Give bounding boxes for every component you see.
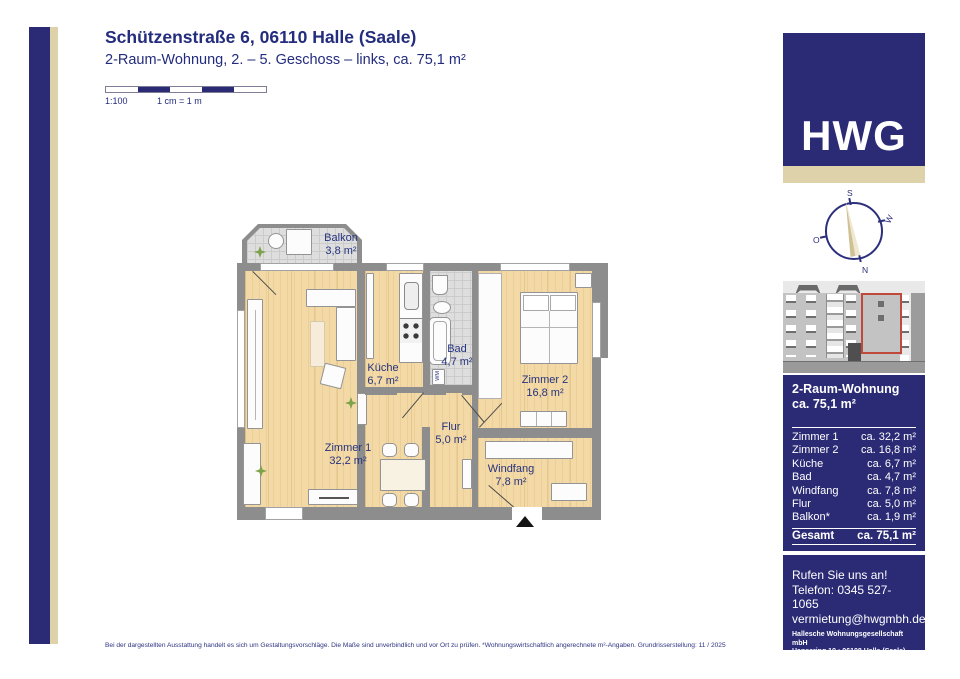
table-row: Flurca. 5,0 m² bbox=[792, 498, 916, 511]
table-row: Windfangca. 7,8 m² bbox=[792, 485, 916, 498]
radiator bbox=[462, 459, 472, 489]
table-row: Zimmer 1ca. 32,2 m² bbox=[792, 431, 916, 444]
window-zimmer2-right bbox=[592, 302, 601, 358]
row-label: Flur bbox=[792, 498, 811, 511]
corner-shelf bbox=[575, 273, 592, 288]
compass: S W O N bbox=[783, 185, 925, 277]
bench bbox=[520, 411, 567, 427]
table-row: Kücheca. 6,7 m² bbox=[792, 458, 916, 471]
cupboard bbox=[357, 393, 367, 425]
washing-machine: WM bbox=[432, 369, 445, 385]
divider bbox=[792, 544, 916, 545]
summary-line1: 2-Raum-Wohnung bbox=[792, 382, 916, 397]
disclaimer: Bei der dargestellten Ausstattung handel… bbox=[105, 642, 726, 649]
room-label-bad: Bad 4,7 m² bbox=[429, 343, 485, 368]
flyer-page: Schützenstraße 6, 06110 Halle (Saale) 2-… bbox=[0, 0, 960, 679]
stairwell-column bbox=[826, 294, 844, 358]
window-zimmer1-left bbox=[237, 310, 245, 428]
row-label: Zimmer 2 bbox=[792, 444, 838, 457]
row-value: ca. 1,9 m² bbox=[867, 511, 916, 524]
rug bbox=[310, 321, 325, 367]
bath-sink bbox=[433, 301, 451, 314]
wall-kueche-bottom bbox=[365, 387, 397, 395]
hwg-logo-text: HWG bbox=[783, 112, 925, 160]
row-label: Bad bbox=[792, 471, 812, 484]
room-label-zimmer2: Zimmer 2 16,8 m² bbox=[514, 374, 576, 399]
left-brand-bar bbox=[29, 27, 50, 644]
row-value: ca. 16,8 m² bbox=[861, 444, 916, 457]
outer-wall-notch bbox=[601, 263, 608, 358]
room-name: Flur bbox=[442, 421, 461, 433]
room-name: Balkon bbox=[324, 232, 358, 244]
hall-wardrobe bbox=[485, 441, 573, 459]
building-photo bbox=[783, 281, 925, 373]
table-total-row: Gesamt ca. 75,1 m² bbox=[792, 529, 916, 544]
window-kueche bbox=[386, 263, 424, 271]
room-area: 32,2 m² bbox=[329, 455, 366, 467]
balcony-table bbox=[268, 233, 284, 249]
wall-bad-bottom-left bbox=[430, 385, 446, 395]
total-value: ca. 75,1 m² bbox=[857, 529, 916, 544]
logo-accent-strip bbox=[783, 166, 925, 183]
built-in-wardrobe bbox=[478, 273, 502, 399]
room-name: Zimmer 2 bbox=[522, 374, 568, 386]
balcony-lounger bbox=[286, 229, 312, 255]
page-subtitle: 2-Raum-Wohnung, 2. – 5. Geschoss – links… bbox=[105, 52, 466, 68]
row-label: Balkon* bbox=[792, 511, 830, 524]
row-value: ca. 32,2 m² bbox=[861, 431, 916, 444]
hwg-logo: HWG bbox=[783, 33, 925, 166]
scale-bar bbox=[105, 86, 267, 93]
room-area: 6,7 m² bbox=[367, 375, 398, 387]
room-name: Küche bbox=[367, 362, 398, 374]
page-title: Schützenstraße 6, 06110 Halle (Saale) bbox=[105, 27, 416, 48]
room-label-flur: Flur 5,0 m² bbox=[428, 421, 474, 446]
bed bbox=[520, 292, 578, 364]
contact-email[interactable]: vermietung@hwgmbh.de bbox=[792, 612, 916, 627]
table-row: Badca. 4,7 m² bbox=[792, 471, 916, 484]
left-accent-bar bbox=[50, 27, 58, 644]
contact-website[interactable]: www.hwgmbh.de bbox=[792, 657, 916, 666]
room-label-zimmer1: Zimmer 1 32,2 m² bbox=[319, 442, 377, 467]
room-area: 4,7 m² bbox=[441, 356, 472, 368]
scale-seg bbox=[106, 87, 138, 92]
scale-ratio: 1:100 bbox=[105, 96, 128, 106]
apartment-summary-panel: 2-Raum-Wohnung ca. 75,1 m² Zimmer 1ca. 3… bbox=[783, 375, 925, 551]
wall-zimmer2-bottom bbox=[472, 428, 601, 438]
room-label-windfang: Windfang 7,8 m² bbox=[473, 463, 549, 488]
scale-note: 1 cm = 1 m bbox=[157, 96, 202, 106]
window-column bbox=[786, 295, 796, 357]
scale-seg bbox=[170, 87, 202, 92]
sofa bbox=[336, 307, 356, 361]
window-column bbox=[806, 295, 816, 357]
sofa bbox=[306, 289, 356, 307]
room-name: Bad bbox=[447, 343, 467, 355]
contact-panel: Rufen Sie uns an! Telefon: 0345 527-1065… bbox=[783, 555, 925, 650]
scale-seg bbox=[234, 87, 266, 92]
apartment-highlight-box bbox=[861, 293, 902, 354]
room-name: Windfang bbox=[488, 463, 534, 475]
row-label: Windfang bbox=[792, 485, 838, 498]
kitchen-unit bbox=[399, 273, 423, 363]
row-value: ca. 5,0 m² bbox=[867, 498, 916, 511]
compass-label-s: S bbox=[847, 188, 853, 198]
chair bbox=[404, 443, 419, 457]
contact-address: Hansering 19 • 06108 Halle (Saale) bbox=[792, 648, 916, 657]
wall-bad-bottom-right bbox=[462, 385, 472, 395]
chair bbox=[382, 443, 397, 457]
room-name: Zimmer 1 bbox=[325, 442, 371, 454]
compass-label-o: O bbox=[813, 235, 820, 245]
compass-label-n: N bbox=[862, 265, 868, 275]
total-label: Gesamt bbox=[792, 529, 834, 544]
room-area: 7,8 m² bbox=[495, 476, 526, 488]
room-area: 16,8 m² bbox=[526, 387, 563, 399]
room-table: Zimmer 1ca. 32,2 m² Zimmer 2ca. 16,8 m² … bbox=[792, 428, 916, 525]
room-area: 5,0 m² bbox=[435, 434, 466, 446]
building-entrance bbox=[848, 343, 861, 361]
table-row: Zimmer 2ca. 16,8 m² bbox=[792, 444, 916, 457]
dining-table bbox=[380, 459, 426, 491]
chair bbox=[382, 493, 397, 507]
floor-plan: WM Balkon 3,8 m² Küche 6,7 m² Bad 4,7 m bbox=[230, 215, 620, 535]
row-label: Küche bbox=[792, 458, 823, 471]
shoe-cabinet bbox=[551, 483, 587, 501]
room-label-balkon: Balkon 3,8 m² bbox=[312, 232, 370, 257]
table-row: Balkon*ca. 1,9 m² bbox=[792, 511, 916, 524]
contact-company: Hallesche Wohnungsgesellschaft mbH bbox=[792, 631, 916, 648]
scale-seg bbox=[202, 87, 234, 92]
contact-phone: Telefon: 0345 527-1065 bbox=[792, 583, 916, 612]
row-label: Zimmer 1 bbox=[792, 431, 838, 444]
entrance-arrow-icon bbox=[516, 516, 534, 527]
row-value: ca. 7,8 m² bbox=[867, 485, 916, 498]
toilet bbox=[432, 275, 448, 295]
sideboard bbox=[308, 489, 358, 505]
scale-seg bbox=[138, 87, 170, 92]
room-area: 3,8 m² bbox=[325, 245, 356, 257]
window-zimmer2 bbox=[500, 263, 570, 271]
window-balcony-door bbox=[260, 263, 334, 271]
row-value: ca. 6,7 m² bbox=[867, 458, 916, 471]
wardrobe bbox=[247, 299, 263, 429]
ground-strip bbox=[783, 361, 925, 373]
contact-cta: Rufen Sie uns an! bbox=[792, 568, 916, 583]
shelf bbox=[243, 443, 261, 505]
window-zimmer1-bottom bbox=[265, 507, 303, 520]
summary-line2: ca. 75,1 m² bbox=[792, 397, 916, 412]
building-edge bbox=[911, 293, 925, 363]
room-label-kueche: Küche 6,7 m² bbox=[353, 362, 413, 387]
row-value: ca. 4,7 m² bbox=[867, 471, 916, 484]
compass-label-w: W bbox=[883, 213, 896, 225]
kitchen-counter bbox=[366, 273, 374, 359]
chair bbox=[404, 493, 419, 507]
washing-machine-label: WM bbox=[435, 371, 441, 381]
